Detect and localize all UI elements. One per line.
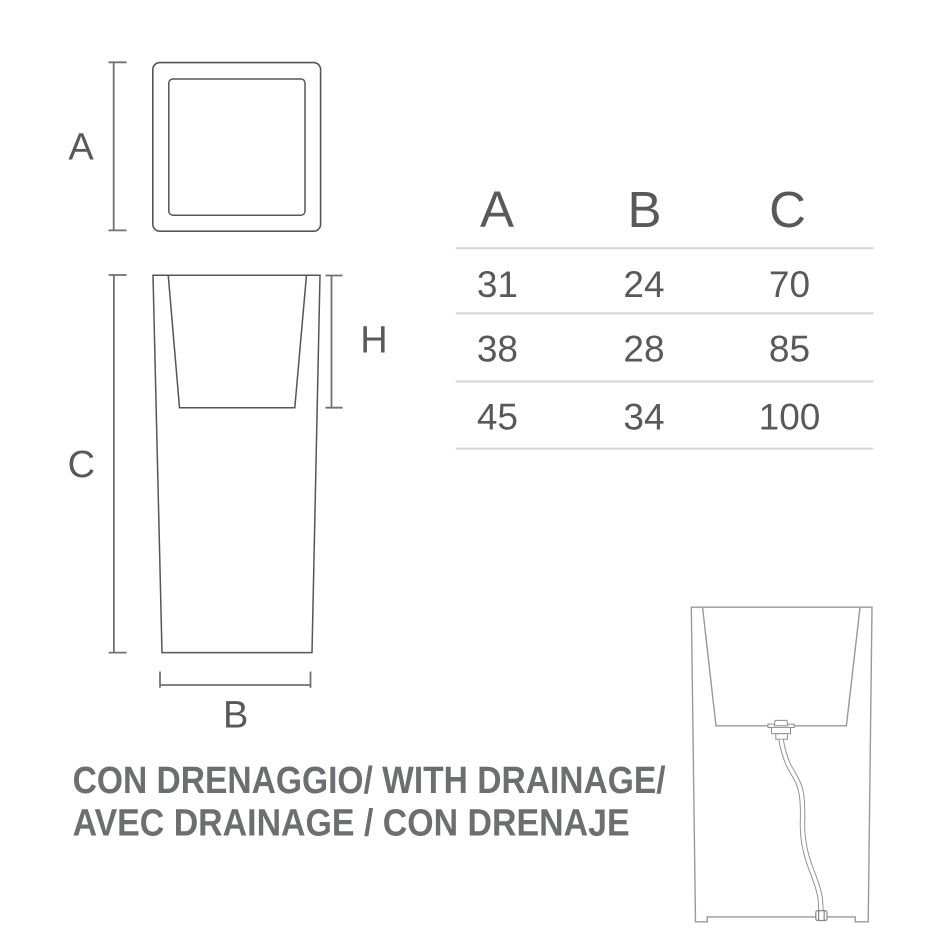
svg-text:45: 45 (477, 397, 518, 438)
svg-text:A: A (480, 181, 514, 238)
svg-text:CON DRENAGGIO/ WITH DRAINAGE/: CON DRENAGGIO/ WITH DRAINAGE/ (73, 760, 666, 802)
svg-text:34: 34 (623, 397, 664, 438)
svg-text:24: 24 (623, 264, 664, 305)
svg-text:28: 28 (623, 328, 664, 369)
svg-text:C: C (769, 181, 806, 238)
svg-text:100: 100 (759, 397, 821, 438)
svg-text:70: 70 (769, 264, 810, 305)
svg-text:B: B (223, 694, 248, 736)
svg-text:H: H (360, 320, 387, 362)
svg-text:C: C (68, 444, 95, 486)
svg-text:85: 85 (769, 328, 810, 369)
svg-text:38: 38 (477, 328, 518, 369)
svg-text:31: 31 (477, 264, 518, 305)
svg-text:A: A (68, 127, 94, 169)
svg-text:AVEC DRAINAGE / CON DRENAJE: AVEC DRAINAGE / CON DRENAJE (73, 803, 630, 845)
svg-text:B: B (627, 181, 661, 238)
